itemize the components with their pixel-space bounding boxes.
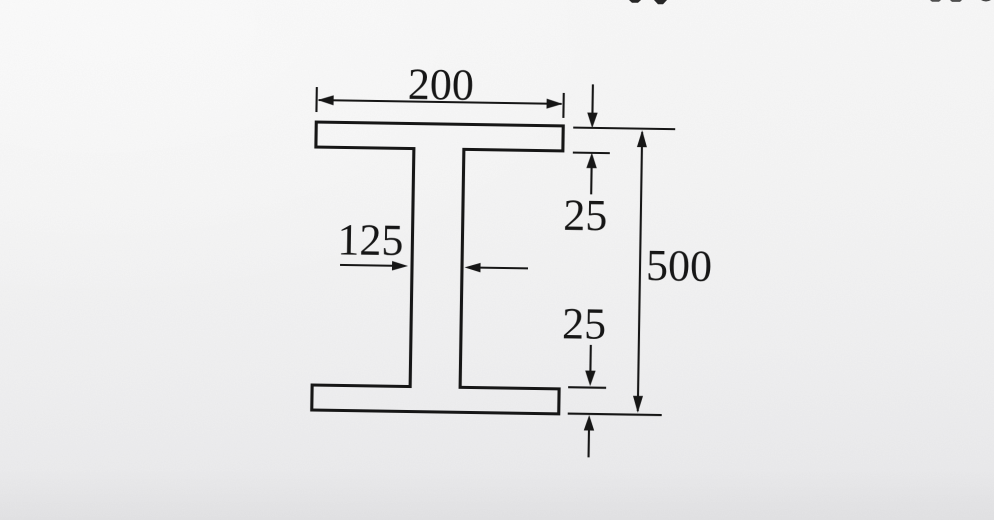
svg-text:200: 200: [408, 59, 475, 109]
svg-text:25: 25: [562, 299, 607, 349]
svg-text:500: 500: [646, 241, 713, 291]
svg-text:25: 25: [563, 190, 608, 240]
svg-text:125: 125: [337, 215, 404, 265]
